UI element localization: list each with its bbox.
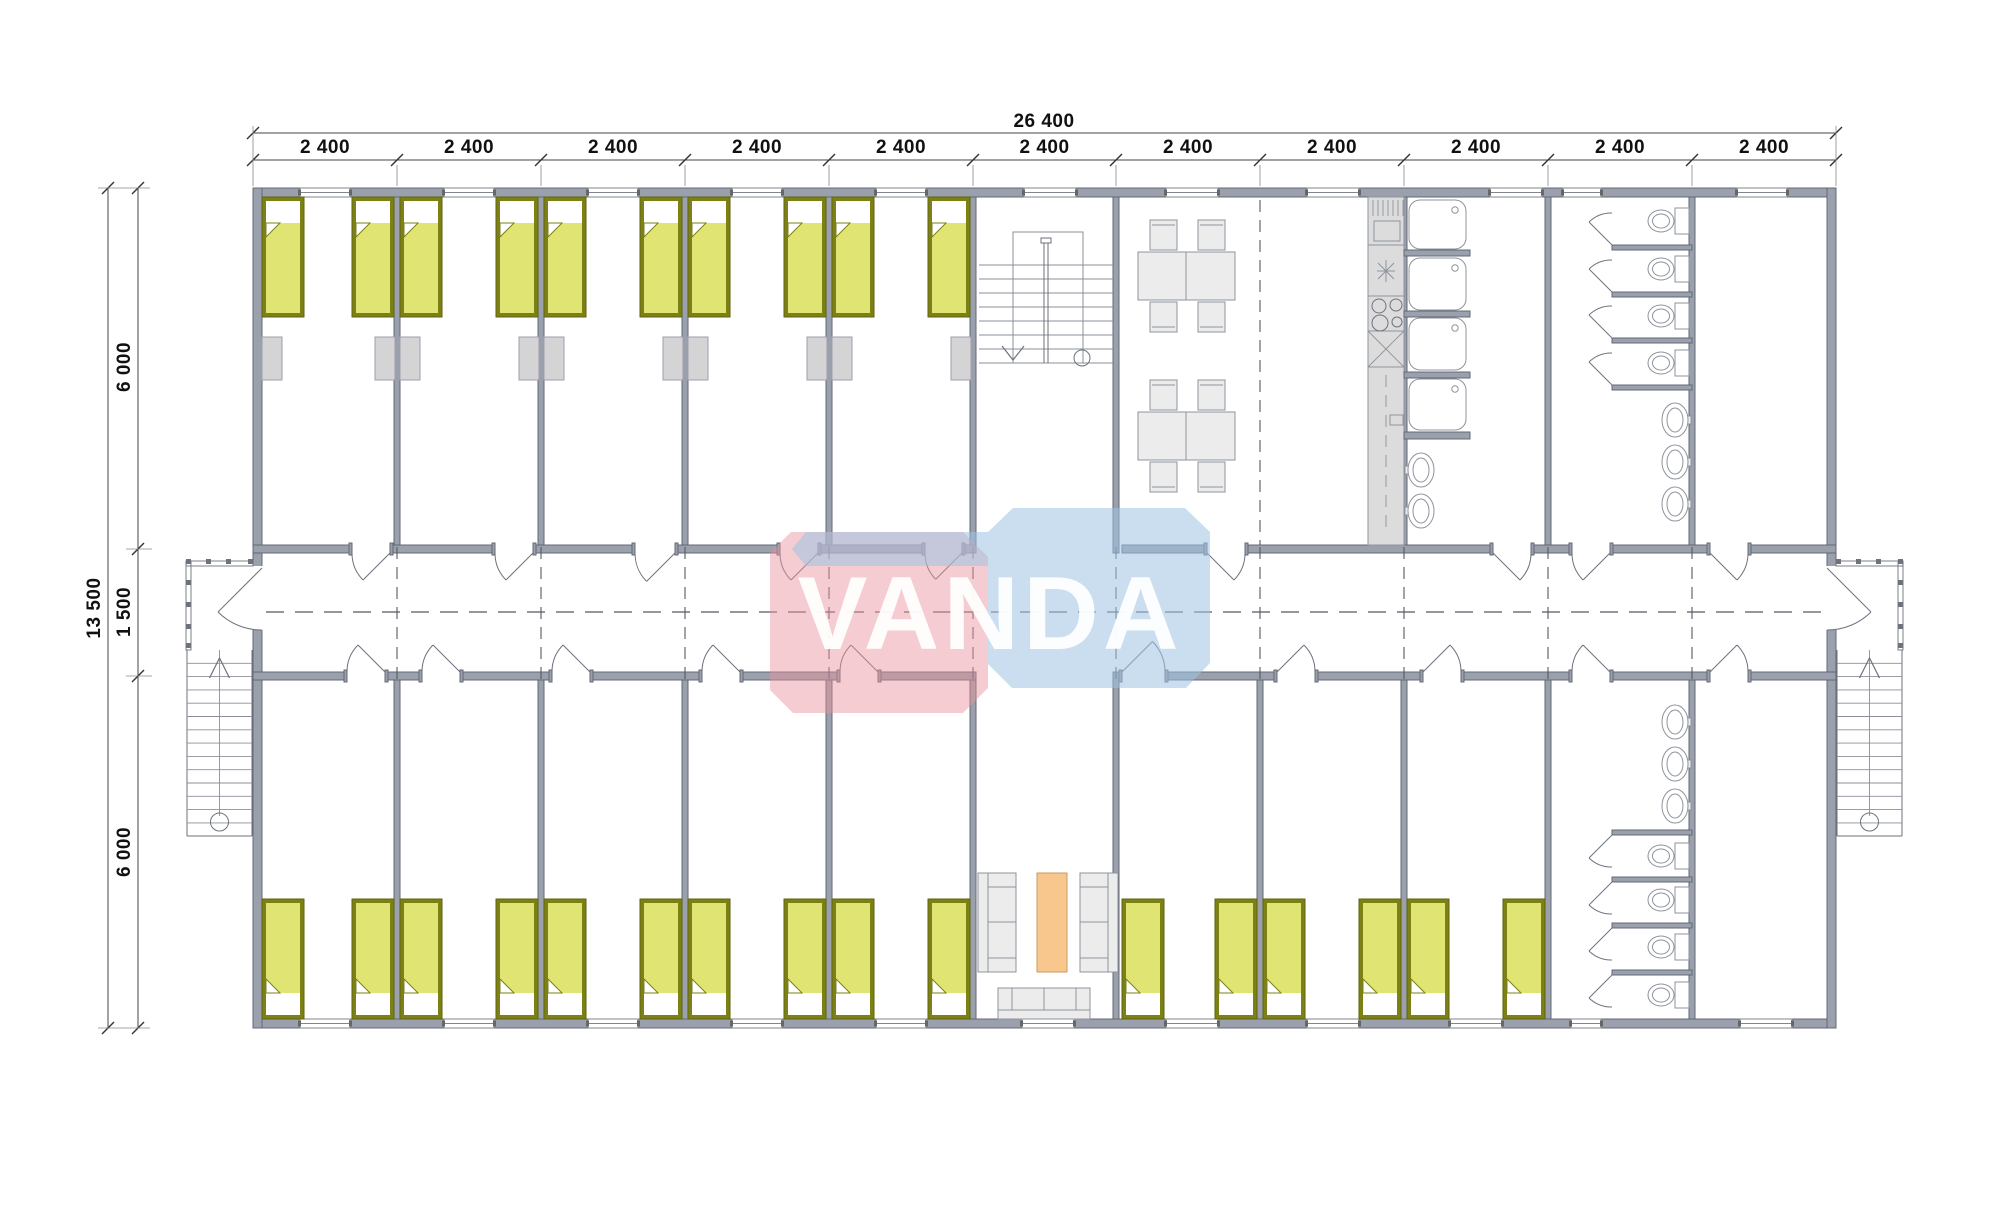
dim-label-module-width: 2 400 bbox=[1019, 137, 1069, 158]
floor-plan-svg: 26 4002 4002 4002 4002 4002 4002 4002 40… bbox=[0, 0, 2000, 1215]
wardrobe bbox=[663, 337, 683, 380]
toilet bbox=[1648, 982, 1689, 1008]
sofa bbox=[998, 988, 1090, 1019]
bed bbox=[544, 899, 586, 1019]
toilet bbox=[1648, 887, 1689, 913]
toilet bbox=[1648, 843, 1689, 869]
dim-label-module-width: 2 400 bbox=[1595, 137, 1645, 158]
wardrobe bbox=[832, 337, 852, 380]
bed bbox=[1263, 899, 1305, 1019]
toilet bbox=[1648, 303, 1689, 329]
wardrobe bbox=[375, 337, 395, 380]
toilet bbox=[1648, 256, 1689, 282]
bed bbox=[1359, 899, 1401, 1019]
bed bbox=[688, 899, 730, 1019]
kitchen-counter bbox=[1368, 197, 1404, 545]
wardrobe bbox=[544, 337, 564, 380]
wardrobe bbox=[951, 337, 971, 380]
dim-label-room-depth: 6 000 bbox=[114, 342, 135, 392]
dining-table bbox=[1138, 252, 1235, 300]
dim-label-module-width: 2 400 bbox=[876, 137, 926, 158]
floor-plan: 26 4002 4002 4002 4002 4002 4002 4002 40… bbox=[0, 0, 2000, 1215]
dim-label-total-height: 13 500 bbox=[84, 577, 105, 638]
watermark-text: VANDA bbox=[798, 556, 1183, 672]
bed bbox=[262, 899, 304, 1019]
bed bbox=[352, 197, 394, 317]
bed bbox=[262, 197, 304, 317]
bed bbox=[400, 899, 442, 1019]
wardrobe bbox=[807, 337, 827, 380]
dim-label-module-width: 2 400 bbox=[1307, 137, 1357, 158]
shower-tray bbox=[1409, 200, 1466, 249]
bed bbox=[1407, 899, 1449, 1019]
dim-label-room-depth: 6 000 bbox=[114, 827, 135, 877]
bed bbox=[640, 197, 682, 317]
wardrobe bbox=[519, 337, 539, 380]
dim-label-corridor-width: 1 500 bbox=[114, 587, 135, 637]
bed bbox=[832, 899, 874, 1019]
dim-label-module-width: 2 400 bbox=[732, 137, 782, 158]
shower-tray bbox=[1409, 258, 1466, 310]
bed bbox=[400, 197, 442, 317]
bed bbox=[928, 899, 970, 1019]
toilet bbox=[1648, 934, 1689, 960]
bed bbox=[1122, 899, 1164, 1019]
shower-area bbox=[1404, 200, 1470, 439]
wardrobe bbox=[262, 337, 282, 380]
shower-tray bbox=[1409, 318, 1466, 370]
shower-tray bbox=[1409, 379, 1466, 430]
bed bbox=[496, 197, 538, 317]
dim-label-module-width: 2 400 bbox=[300, 137, 350, 158]
bed bbox=[352, 899, 394, 1019]
bed bbox=[688, 197, 730, 317]
bed bbox=[496, 899, 538, 1019]
bed bbox=[544, 197, 586, 317]
toilet bbox=[1648, 350, 1689, 376]
wardrobe bbox=[400, 337, 420, 380]
wardrobe bbox=[688, 337, 708, 380]
toilet bbox=[1648, 208, 1689, 234]
dim-label-total-width: 26 400 bbox=[1013, 111, 1074, 132]
coffee-table bbox=[1037, 873, 1067, 972]
bed bbox=[1503, 899, 1545, 1019]
bed bbox=[1215, 899, 1257, 1019]
sofa bbox=[1080, 873, 1118, 972]
dim-label-module-width: 2 400 bbox=[588, 137, 638, 158]
bed bbox=[784, 899, 826, 1019]
bed bbox=[784, 197, 826, 317]
dim-label-module-width: 2 400 bbox=[1163, 137, 1213, 158]
bed bbox=[928, 197, 970, 317]
dim-label-module-width: 2 400 bbox=[1451, 137, 1501, 158]
bed bbox=[640, 899, 682, 1019]
sofa bbox=[978, 873, 1016, 972]
dim-label-module-width: 2 400 bbox=[1739, 137, 1789, 158]
bed bbox=[832, 197, 874, 317]
dining-table bbox=[1138, 412, 1235, 460]
dim-label-module-width: 2 400 bbox=[444, 137, 494, 158]
